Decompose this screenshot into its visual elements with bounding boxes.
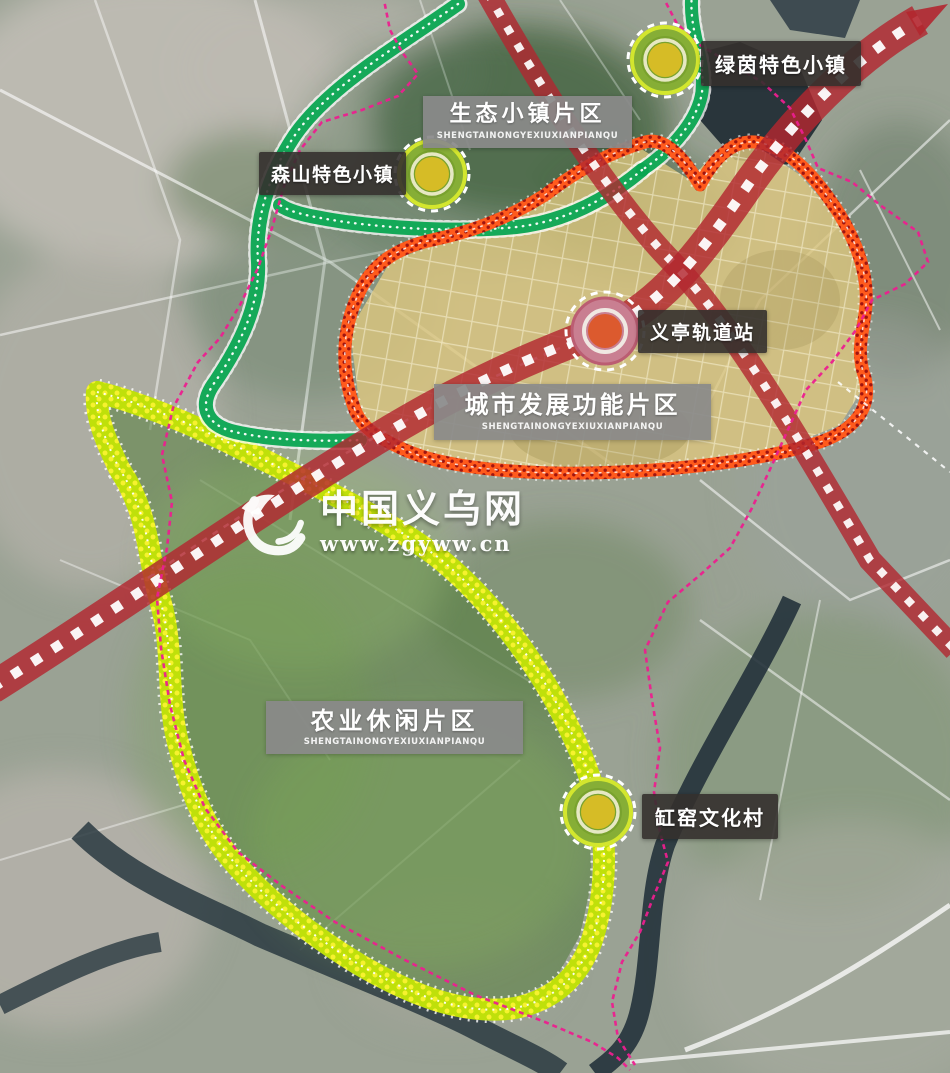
planning-map: 生态小镇片区 SHENGTAINONGYEXIUXIANPIANQU 城市发展功… [0,0,950,1073]
region-title: 生态小镇片区 [423,103,632,127]
region-title: 农业休闲片区 [266,708,523,734]
marker-label-gangyao: 缸窑文化村 [642,794,778,839]
region-label-urban-development: 城市发展功能片区 SHENGTAINONGYEXIUXIANPIANQU [434,384,711,440]
watermark-site-url: www.zgyww.cn [320,531,525,556]
marker-label-yiting-station: 义亭轨道站 [638,310,767,353]
zgyww-logo-icon [236,486,310,560]
region-pinyin: SHENGTAINONGYEXIUXIANPIANQU [266,737,523,747]
marker-label-senshan: 森山特色小镇 [259,152,406,195]
region-label-eco-town: 生态小镇片区 SHENGTAINONGYEXIUXIANPIANQU [423,96,632,148]
region-pinyin: SHENGTAINONGYEXIUXIANPIANQU [423,131,632,141]
region-label-agri-leisure: 农业休闲片区 SHENGTAINONGYEXIUXIANPIANQU [266,701,523,754]
watermark-site-name: 中国义乌网 [320,490,525,528]
region-pinyin: SHENGTAINONGYEXIUXIANPIANQU [434,422,711,432]
marker-label-lvyin: 绿茵特色小镇 [701,41,861,86]
site-watermark: 中国义乌网 www.zgyww.cn [236,486,525,560]
region-title: 城市发展功能片区 [434,392,711,418]
